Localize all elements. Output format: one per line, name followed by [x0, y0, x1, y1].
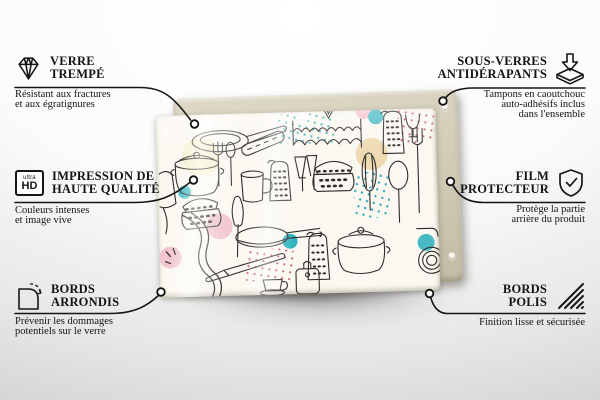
callout-title-line: ANTIDÉRAPANTS — [438, 68, 547, 81]
callout-title-line: TREMPÉ — [50, 68, 105, 81]
shield-check-icon — [557, 168, 585, 198]
callout-title: SOUS-VERRES ANTIDÉRAPANTS — [438, 55, 547, 81]
callout-description-line: dans l'ensemble — [395, 110, 585, 120]
product-infographic: VERRE TREMPÉ Résistant aux fractures et … — [0, 0, 600, 400]
callout-description: Couleurs intenses et image vive — [15, 206, 165, 226]
callout-title: IMPRESSION DE HAUTE QUALITÉ — [52, 170, 160, 196]
rounded-corner-icon — [15, 282, 43, 310]
callout-description: Tampons en caoutchouc auto-adhésifs incl… — [395, 90, 585, 120]
callout-title: BORDS POLIS — [503, 283, 547, 309]
callout-description-line: potentiels sur le verre — [15, 327, 165, 337]
callout-description: Finition lisse et sécurisée — [395, 318, 585, 328]
callout-title: FILM PROTECTEUR — [460, 170, 549, 196]
callout-title: VERRE TREMPÉ — [50, 55, 105, 81]
callout-description-line: Finition lisse et sécurisée — [395, 318, 585, 328]
callout-title: BORDS ARRONDIS — [51, 283, 119, 309]
anti-slip-pads-icon — [555, 52, 585, 85]
anti-slip-pad — [448, 252, 455, 259]
callout-verre-trempe: VERRE TREMPÉ Résistant aux fractures et … — [15, 54, 165, 110]
callout-description: Prévenir les dommages potentiels sur le … — [15, 317, 165, 337]
callout-description: Protège la partie arrière du produit — [395, 205, 585, 225]
callout-title-line: POLIS — [503, 296, 547, 309]
polished-edges-icon — [555, 282, 585, 310]
callout-title-line: ARRONDIS — [51, 296, 119, 309]
callout-description: Résistant aux fractures et aux égratignu… — [15, 90, 165, 110]
ultra-hd-icon-big-text: HD — [22, 181, 38, 191]
callout-bords-arrondis: BORDS ARRONDIS Prévenir les dommages pot… — [15, 282, 165, 337]
callout-film-protecteur: FILM PROTECTEUR Protège la partie arrièr… — [395, 169, 585, 225]
callout-description-line: et image vive — [15, 216, 165, 226]
ultra-hd-icon: ultra HD — [15, 170, 44, 196]
diamond-icon — [15, 56, 42, 81]
callout-bords-polis: BORDS POLIS Finition lisse et sécurisée — [395, 282, 585, 328]
callout-sous-verres-antiderapants: SOUS-VERRES ANTIDÉRAPANTS Tampons en cao… — [395, 54, 585, 120]
callout-description-line: arrière du produit — [395, 215, 585, 225]
callout-description-line: et aux égratignures — [15, 100, 165, 110]
callout-title-line: HAUTE QUALITÉ — [52, 183, 160, 196]
callout-title-line: PROTECTEUR — [460, 183, 549, 196]
callout-impression-haute-qualite: ultra HD IMPRESSION DE HAUTE QUALITÉ Cou… — [15, 169, 165, 226]
